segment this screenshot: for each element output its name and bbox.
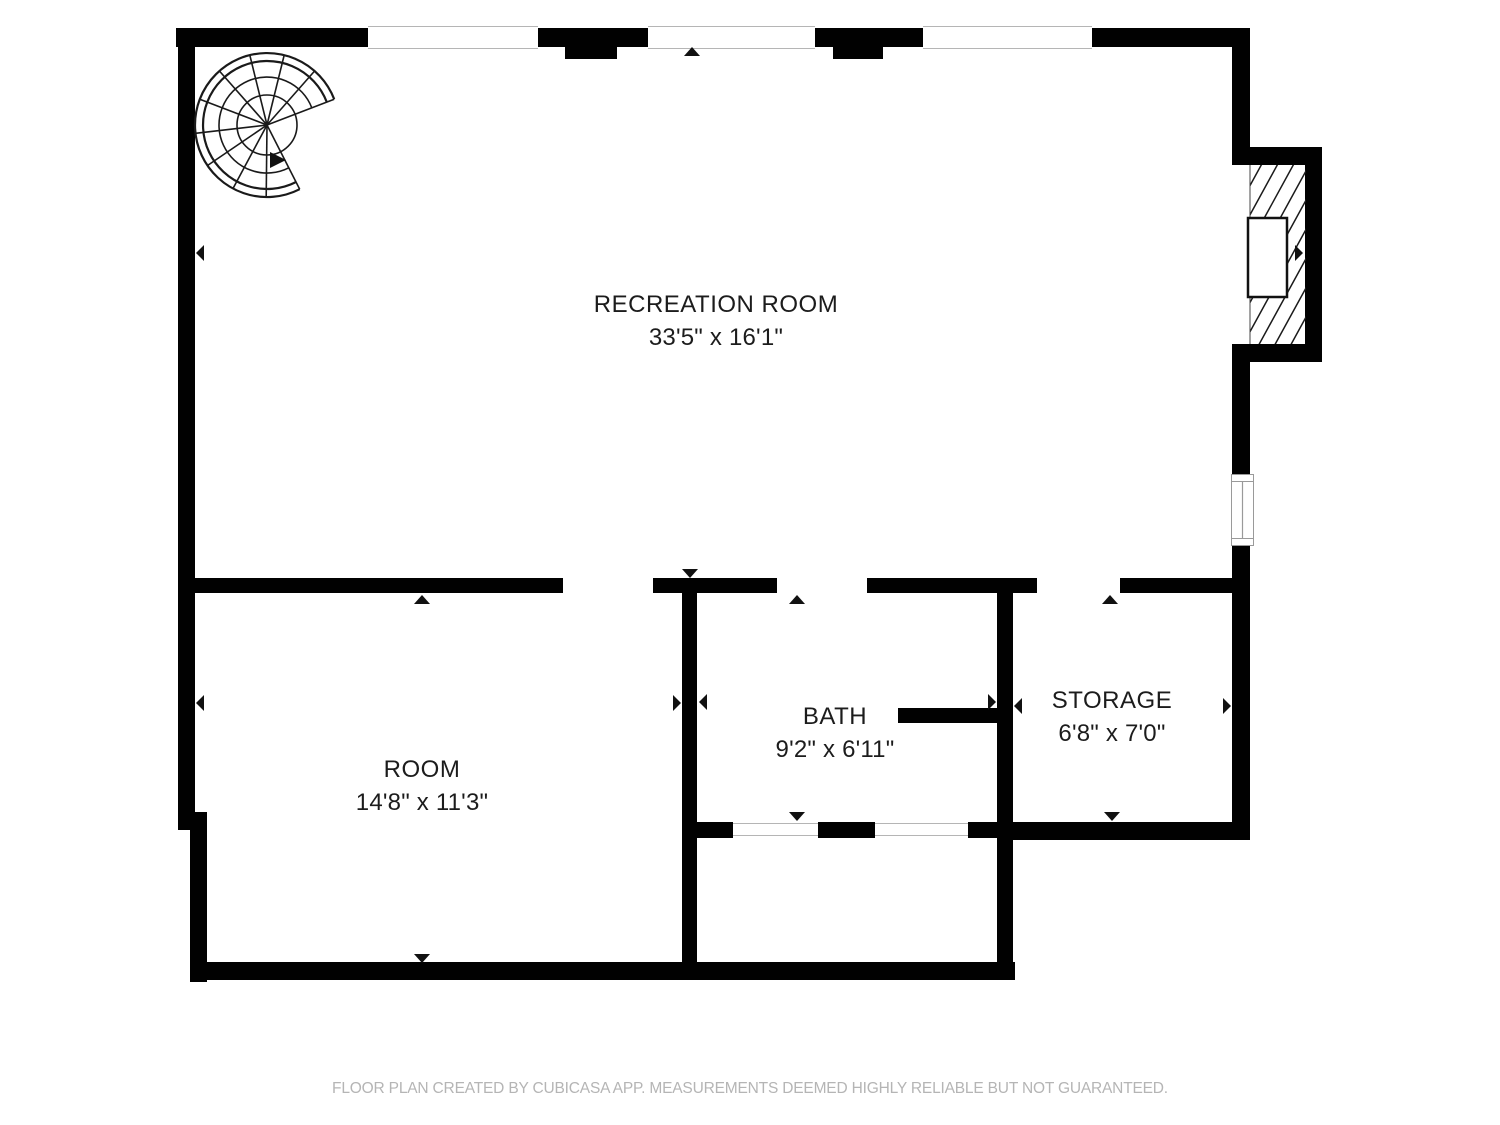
opening-arrow-icon xyxy=(682,569,698,578)
room-dimensions: 33'5" x 16'1" xyxy=(516,321,916,354)
plan-symbols-overlay xyxy=(0,0,1500,1125)
opening-arrow-icon xyxy=(414,595,430,604)
room-dimensions: 9'2" x 6'11" xyxy=(735,733,935,766)
opening-arrow-icon xyxy=(684,47,700,56)
opening-arrow-icon xyxy=(699,694,707,710)
fireplace-flue xyxy=(1248,218,1287,297)
opening-arrow-icon xyxy=(196,695,204,711)
opening-arrow-icon xyxy=(1104,812,1120,821)
room-dimensions: 6'8" x 7'0" xyxy=(1012,717,1212,750)
hatched-fireplace-icon xyxy=(1160,160,1392,350)
room-label-room: ROOM 14'8" x 11'3" xyxy=(272,753,572,819)
spiral-staircase-icon xyxy=(195,53,334,197)
opening-arrow-icon xyxy=(673,695,681,711)
room-name: BATH xyxy=(735,700,935,733)
opening-arrow-icon xyxy=(789,812,805,821)
opening-markers xyxy=(196,47,1231,963)
stair-direction-arrow-icon xyxy=(270,152,286,168)
opening-arrow-icon xyxy=(1223,698,1231,714)
room-name: ROOM xyxy=(272,753,572,786)
opening-arrow-icon xyxy=(196,245,204,261)
room-dimensions: 14'8" x 11'3" xyxy=(272,786,572,819)
room-label-recreation: RECREATION ROOM 33'5" x 16'1" xyxy=(516,288,916,354)
room-name: STORAGE xyxy=(1012,684,1212,717)
window-right-icon xyxy=(1232,475,1254,546)
opening-arrow-icon xyxy=(1295,245,1303,261)
floor-plan: RECREATION ROOM 33'5" x 16'1" ROOM 14'8"… xyxy=(0,0,1500,1125)
footer-disclaimer: FLOOR PLAN CREATED BY CUBICASA APP. MEAS… xyxy=(23,1080,1478,1098)
opening-arrow-icon xyxy=(1102,595,1118,604)
room-name: RECREATION ROOM xyxy=(516,288,916,321)
opening-arrow-icon xyxy=(789,595,805,604)
opening-arrow-icon xyxy=(414,954,430,963)
room-label-bath: BATH 9'2" x 6'11" xyxy=(735,700,935,766)
room-label-storage: STORAGE 6'8" x 7'0" xyxy=(1012,684,1212,750)
opening-arrow-icon xyxy=(988,694,996,710)
